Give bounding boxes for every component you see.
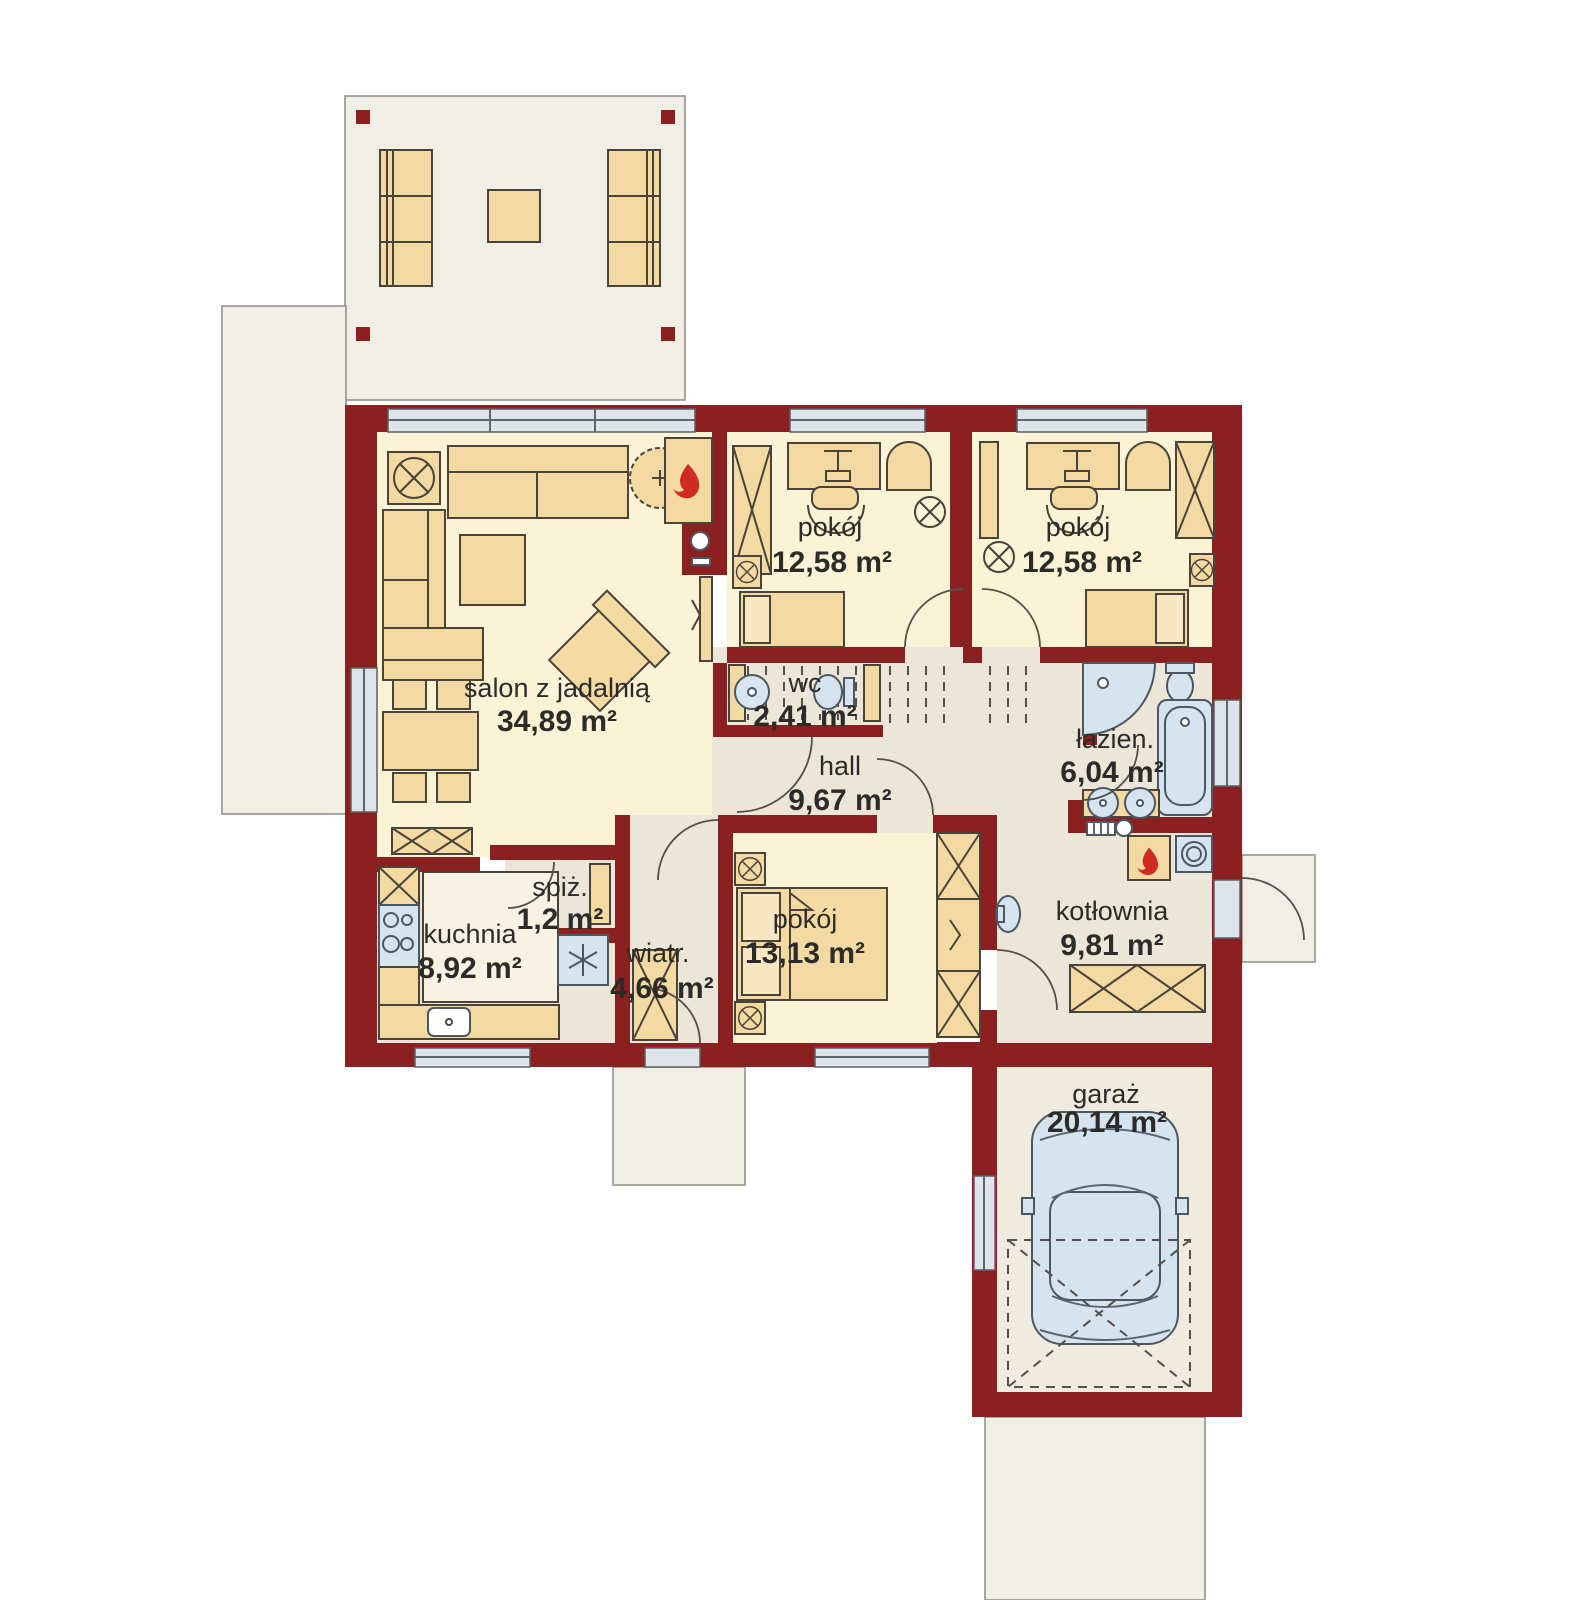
tv-cabinet: [388, 452, 440, 504]
toilet: [1166, 663, 1194, 702]
car-icon: [1022, 1112, 1188, 1344]
room-area-garaz: 20,14 m²: [1047, 1106, 1167, 1139]
room-label-wiatrolap: wiatr.: [625, 938, 689, 968]
bathtub: [1158, 700, 1212, 815]
room-label-hall: hall: [819, 751, 861, 781]
coffee-table: [460, 535, 525, 605]
floor-plan-drawing: salon z jadalnią 34,89 m² pokój 12,58 m²…: [0, 0, 1594, 1600]
room-label-pokoj-3: pokój: [773, 904, 838, 934]
terrace-post: [356, 327, 370, 341]
room-area-pokoj-1: 12,58 m²: [772, 546, 892, 579]
double-sink: [1083, 788, 1159, 818]
room-area-pokoj-2: 12,58 m²: [1022, 546, 1142, 579]
fridge: [558, 935, 608, 985]
room-area-kotlownia: 9,81 m²: [1060, 929, 1163, 962]
room-label-kuchnia: kuchnia: [423, 919, 517, 949]
room-label-pokoj-1: pokój: [798, 512, 863, 542]
nightstand: [735, 853, 765, 885]
entry-door: [645, 1048, 700, 1067]
room-label-lazienka: łazien.: [1076, 724, 1154, 754]
terrace-post: [356, 110, 370, 124]
wardrobe: [1176, 442, 1214, 538]
terrace: [345, 96, 685, 400]
pokoj-1-window: [790, 409, 925, 432]
storage-cabinet: [1070, 965, 1205, 1012]
room-label-salon: salon z jadalnią: [464, 673, 651, 703]
room-label-garaz: garaż: [1072, 1079, 1140, 1109]
room-label-spizarnia: spiż.: [532, 872, 588, 902]
entry-stoop: [613, 1067, 745, 1185]
pokoj-2-window: [1017, 409, 1147, 432]
room-label-pokoj-2: pokój: [1046, 512, 1111, 542]
bottom-counter: [379, 1005, 559, 1039]
garden-bench-right: [608, 150, 660, 286]
kuchnia-window: [415, 1048, 530, 1067]
sofa: [448, 446, 628, 518]
garden-table: [488, 190, 540, 242]
room-label-kotlownia: kotłownia: [1056, 896, 1170, 926]
room-area-pokoj-3: 13,13 m²: [745, 937, 865, 970]
terrace-post: [661, 327, 675, 341]
stove: [379, 905, 419, 967]
room-area-spizarnia: 1,2 m²: [517, 903, 604, 936]
room-label-wc: wc: [788, 668, 822, 698]
sliding-wardrobe: [937, 833, 980, 1037]
side-porch: [1242, 855, 1315, 962]
garaz-window: [974, 1176, 995, 1270]
utility-sink: [996, 896, 1020, 932]
heater: [1087, 820, 1132, 836]
room-area-wc: 2,41 m²: [753, 700, 856, 733]
room-area-hall: 9,67 m²: [788, 784, 891, 817]
lazienka-window: [1214, 700, 1240, 786]
shelf: [980, 442, 998, 538]
upper-cabinet: [379, 867, 419, 905]
driveway: [985, 1417, 1205, 1600]
wc-shelf: [864, 665, 880, 721]
pokoj-3-window: [815, 1048, 929, 1067]
floor-plan-canvas: salon z jadalnią 34,89 m² pokój 12,58 m²…: [0, 0, 1594, 1600]
nightstand: [733, 556, 761, 588]
reading-chair: [1126, 442, 1170, 490]
salon-side-window: [351, 668, 377, 812]
room-area-salon: 34,89 m²: [497, 705, 617, 738]
sideboard: [392, 828, 472, 854]
washing-machine: [1176, 836, 1212, 872]
nightstand: [1190, 554, 1214, 586]
wardrobe: [733, 446, 771, 574]
boiler: [1128, 836, 1170, 880]
room-area-wiatrolap: 4,66 m²: [610, 972, 713, 1005]
salon-top-window: [388, 409, 695, 432]
reading-chair: [887, 442, 931, 490]
boiler-room-door: [1214, 880, 1240, 938]
nightstand: [735, 1002, 765, 1034]
garden-bench-left: [380, 150, 432, 286]
room-area-kuchnia: 8,92 m²: [418, 952, 521, 985]
side-patio: [222, 306, 346, 814]
terrace-post: [661, 110, 675, 124]
room-area-lazienka: 6,04 m²: [1060, 756, 1163, 789]
